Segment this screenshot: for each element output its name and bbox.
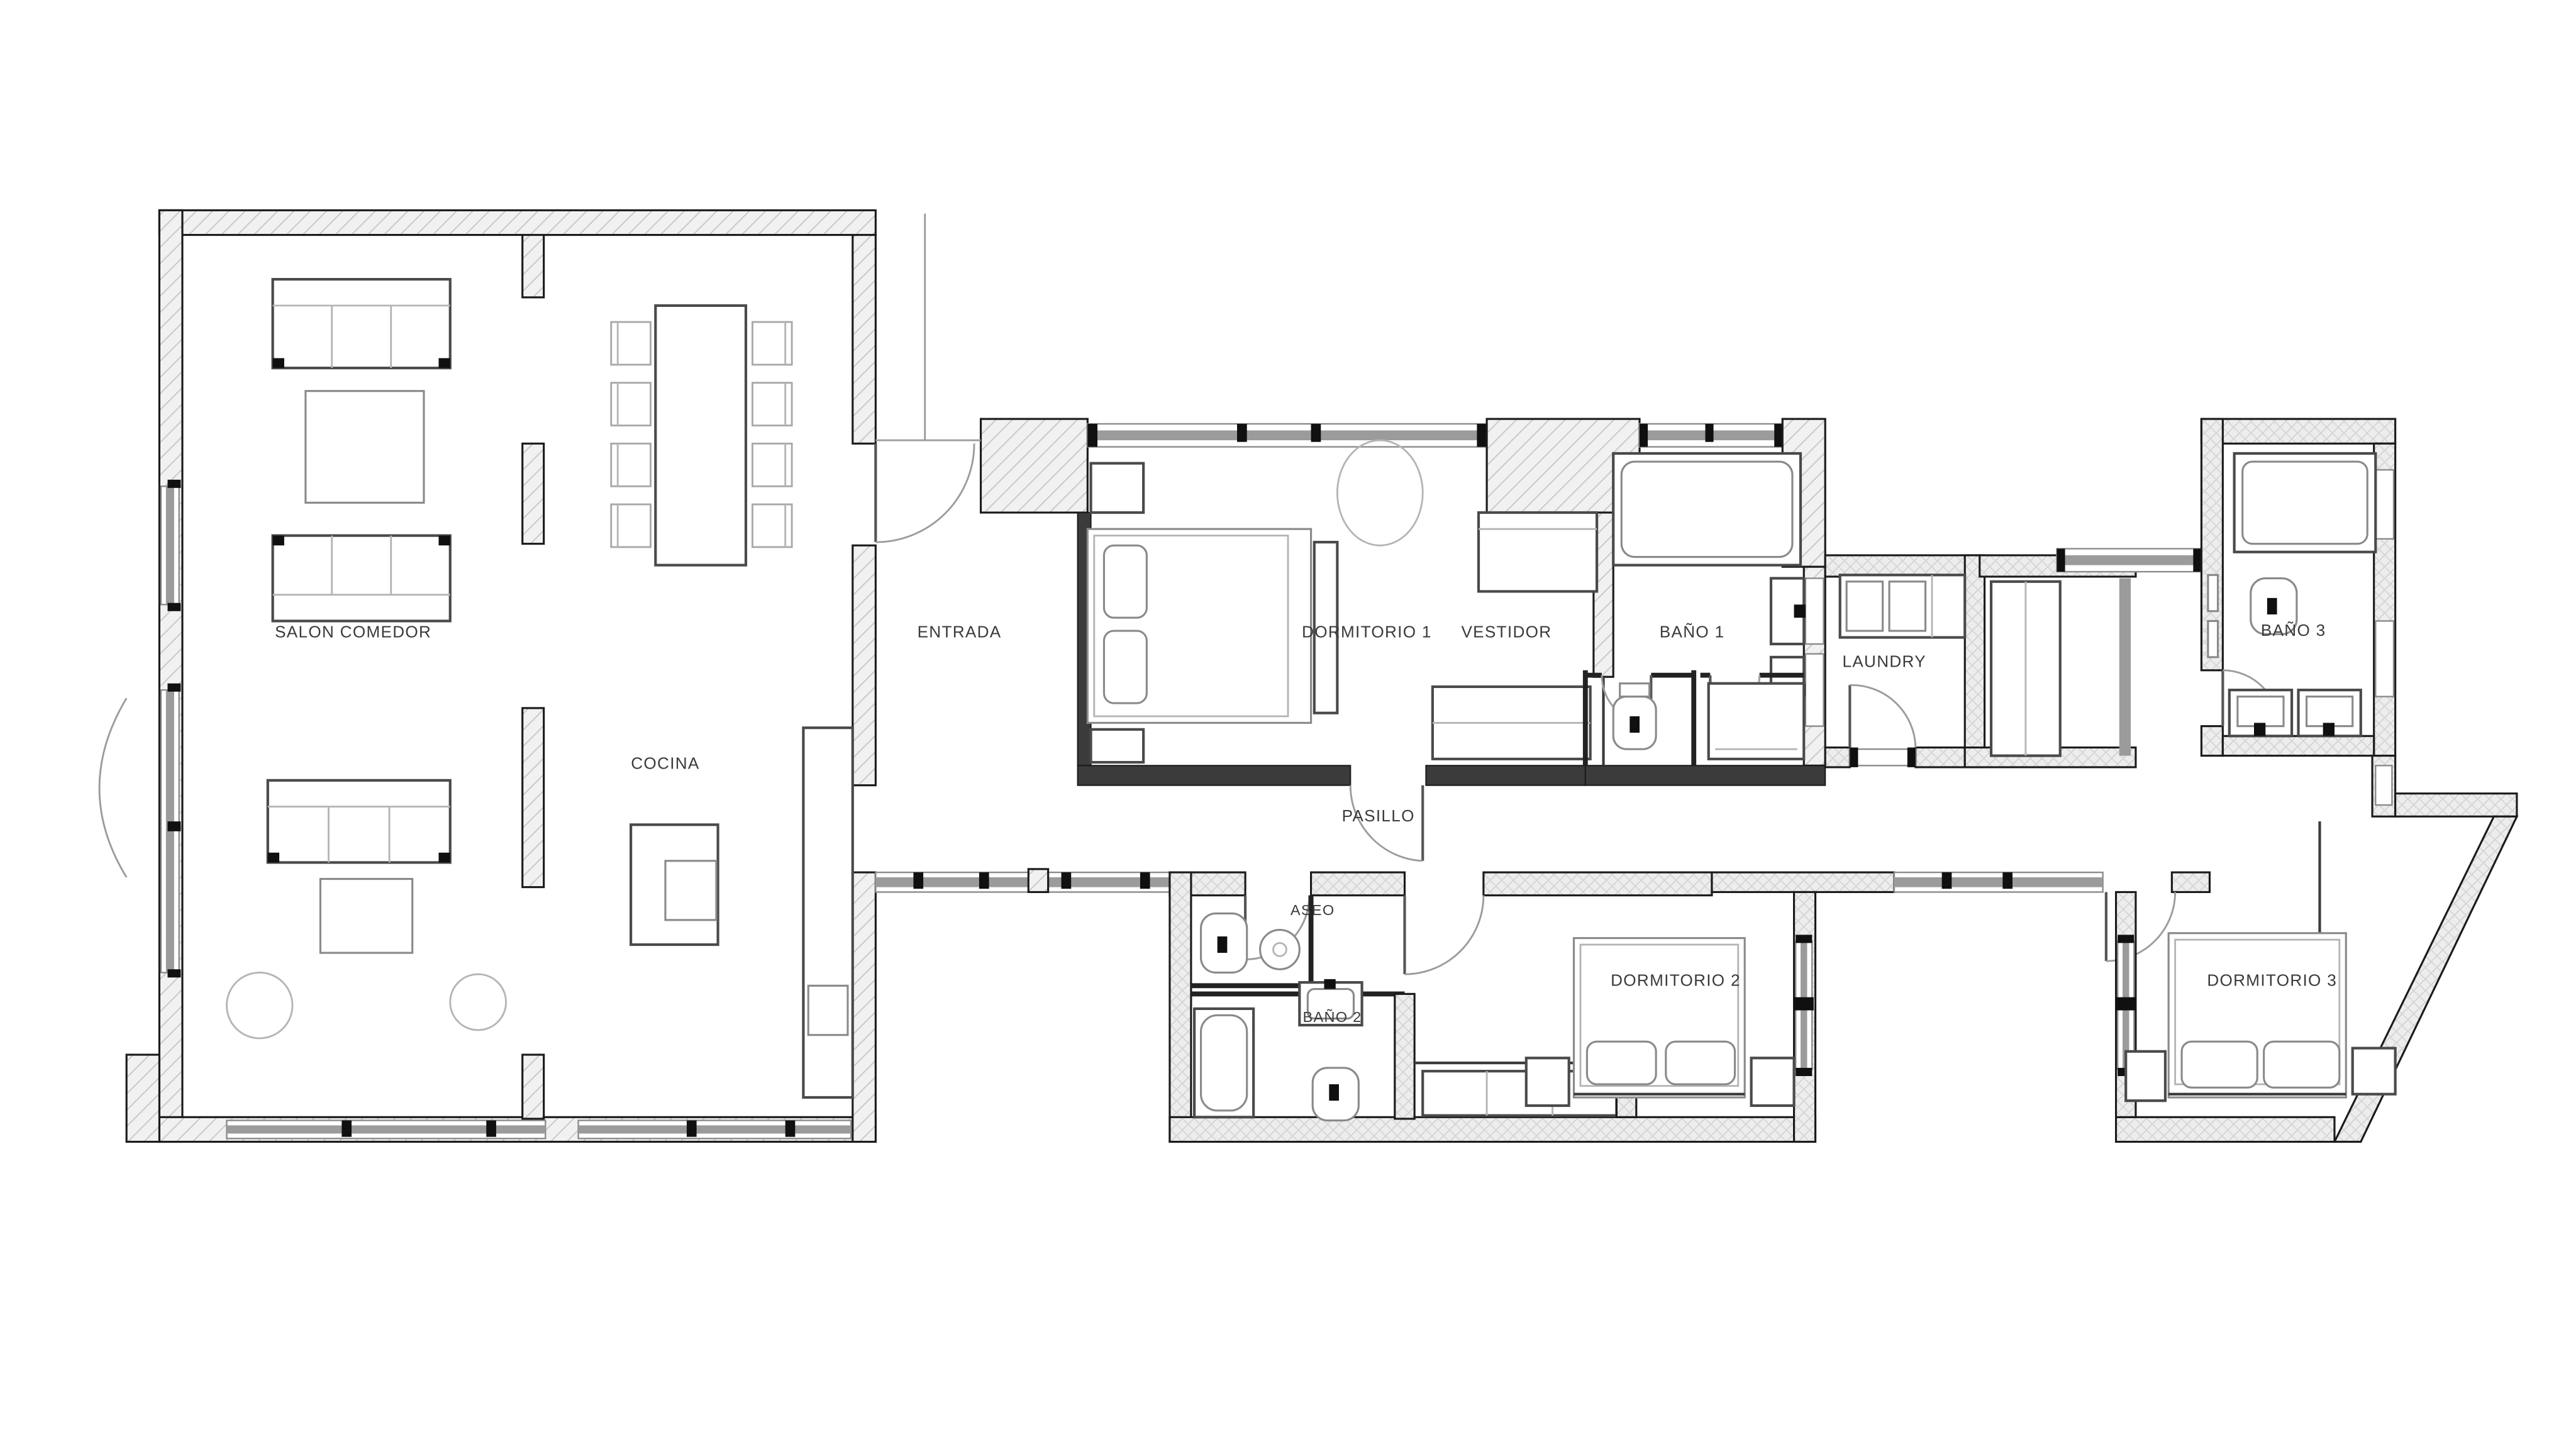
sofa-top <box>273 279 450 368</box>
laundry-appliances <box>1840 575 1965 637</box>
dining-table-chairs <box>611 306 792 565</box>
room-label-laundry: LAUNDRY <box>1843 652 1926 671</box>
dorm2-right-window <box>1794 935 1814 1076</box>
entrada-door <box>875 443 974 542</box>
room-label-cocina: COCINA <box>631 754 699 773</box>
bano1-right-window-2 <box>1806 654 1824 726</box>
room-label-aseo: ASEO <box>1291 902 1335 918</box>
room-label-dormitorio-2: DORMITORIO 2 <box>1611 970 1741 989</box>
room-label-salon-comedor: SALON COMEDOR <box>275 623 431 641</box>
neck-window <box>2057 548 2202 572</box>
room-label-entrada: ENTRADA <box>918 623 1002 641</box>
kitchen-counter <box>803 728 852 1097</box>
bano1-bathtub <box>1613 453 1801 565</box>
bano3-sinks <box>2229 690 2361 736</box>
pouf-right <box>450 974 506 1030</box>
floor-plan-page: SALON COMEDOR ENTRADA DORMITORIO 1 VESTI… <box>0 0 2576 1447</box>
bano1-right-window-1 <box>1806 579 1824 644</box>
coffee-table <box>306 391 424 503</box>
hall-closet <box>1991 579 2131 756</box>
dorm2-nightstand-right <box>1752 1058 1794 1106</box>
bano3-window-2 <box>2375 621 2394 696</box>
dorm3-nightstand-right <box>2353 1048 2396 1094</box>
room-label-dormitorio-1: DORMITORIO 1 <box>1302 623 1432 641</box>
room-label-bano-1: BAÑO 1 <box>1660 623 1725 641</box>
sofa-middle <box>273 536 450 621</box>
dorm1-top-window <box>1087 424 1487 447</box>
dorm1-chair <box>1337 440 1423 545</box>
dorm3-top-window <box>1894 872 2103 892</box>
facade-curve <box>99 698 126 877</box>
dorm3-bed <box>2168 933 2346 1097</box>
suite-bottom-wall <box>1078 765 1826 785</box>
bano1-top-window <box>1640 424 1782 447</box>
dorm3-nightstand-left <box>2126 1052 2165 1101</box>
bano3-shower <box>2235 453 2376 552</box>
room-label-pasillo: PASILLO <box>1342 806 1415 825</box>
room-label-bano-2: BAÑO 2 <box>1303 1009 1362 1025</box>
room-label-dormitorio-3: DORMITORIO 3 <box>2207 970 2337 989</box>
dorm2-nightstand-left <box>1526 1058 1569 1106</box>
dorm1-nightstand-top <box>1091 464 1144 513</box>
dorm1-wardrobe <box>1433 687 1591 759</box>
dorm2-bed <box>1574 938 1745 1097</box>
bano3-window-1 <box>2375 470 2394 539</box>
pasillo-window-band <box>875 869 1170 892</box>
bano1-toilet-room <box>1585 670 1694 766</box>
room-label-bano-3: BAÑO 3 <box>2261 621 2326 640</box>
room-label-vestidor: VESTIDOR <box>1461 623 1552 641</box>
dorm1-nightstand-bottom <box>1091 730 1144 762</box>
sofa-lower <box>268 780 450 863</box>
floor-plan-canvas: SALON COMEDOR ENTRADA DORMITORIO 1 VESTI… <box>0 0 2576 1447</box>
kitchen-island <box>631 824 718 945</box>
laundry-door <box>1850 685 1915 767</box>
bano1-shower <box>1701 675 1804 759</box>
dorm2-door <box>1404 896 1483 974</box>
entrada-top-wall <box>981 419 1088 513</box>
dorm1-bed <box>1087 529 1337 723</box>
bano1-sink-1 <box>1771 579 1806 644</box>
vestidor-closet <box>1479 513 1597 591</box>
left-block-windows <box>99 480 851 1139</box>
side-table <box>320 879 412 953</box>
pouf-left <box>226 972 292 1038</box>
